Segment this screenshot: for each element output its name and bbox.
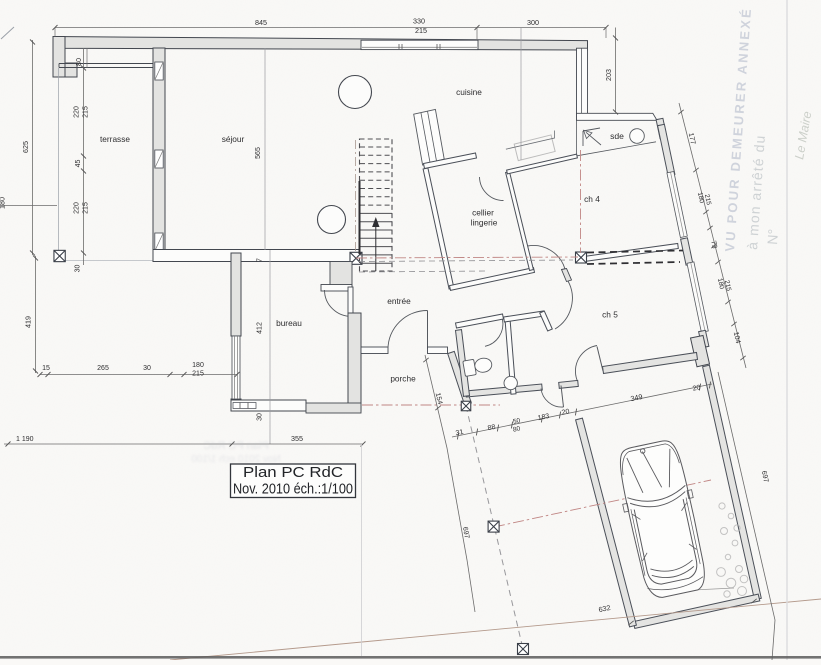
svg-text:Plan PC RdC: Plan PC RdC (243, 464, 343, 481)
svg-text:203: 203 (604, 69, 613, 81)
svg-text:porche: porche (390, 374, 416, 384)
svg-text:845: 845 (255, 18, 267, 27)
svg-text:330: 330 (413, 17, 425, 26)
svg-text:Plan PC RdC: Plan PC RdC (203, 440, 268, 452)
svg-text:565: 565 (255, 147, 262, 159)
svg-text:15: 15 (42, 365, 50, 372)
svg-text:séjour: séjour (222, 134, 245, 144)
svg-text:80: 80 (74, 58, 83, 66)
svg-text:1 190: 1 190 (16, 436, 34, 443)
svg-text:entrée: entrée (387, 296, 411, 306)
svg-text:215: 215 (83, 202, 90, 214)
svg-text:ch 4: ch 4 (584, 194, 600, 204)
svg-text:180: 180 (192, 362, 204, 369)
svg-text:215: 215 (83, 106, 90, 118)
svg-text:45: 45 (75, 160, 82, 168)
svg-text:Nov 2010 ech 1/100: Nov 2010 ech 1/100 (191, 454, 281, 465)
svg-text:terrasse: terrasse (100, 134, 130, 144)
svg-text:30: 30 (75, 265, 82, 273)
svg-text:30: 30 (143, 365, 151, 372)
svg-text:180: 180 (0, 197, 7, 209)
svg-text:30: 30 (257, 413, 264, 421)
svg-text:lingerie: lingerie (471, 218, 498, 228)
svg-text:419: 419 (24, 316, 33, 328)
svg-text:N°: N° (764, 228, 781, 245)
svg-text:7: 7 (257, 258, 264, 262)
svg-text:265: 265 (97, 365, 109, 372)
svg-text:355: 355 (291, 434, 303, 443)
svg-text:215: 215 (192, 371, 204, 378)
svg-text:bureau: bureau (276, 318, 302, 328)
svg-text:220: 220 (74, 202, 81, 214)
svg-text:ch 5: ch 5 (602, 310, 618, 320)
svg-text:Nov. 2010 éch.:1/100: Nov. 2010 éch.:1/100 (233, 482, 353, 498)
svg-text:220: 220 (74, 106, 81, 118)
svg-text:cellier: cellier (472, 208, 494, 218)
svg-text:625: 625 (21, 141, 30, 153)
svg-text:cuisine: cuisine (456, 87, 482, 97)
svg-text:412: 412 (257, 322, 264, 334)
svg-text:215: 215 (415, 26, 427, 35)
svg-text:300: 300 (527, 18, 539, 27)
svg-text:sde: sde (610, 131, 624, 141)
